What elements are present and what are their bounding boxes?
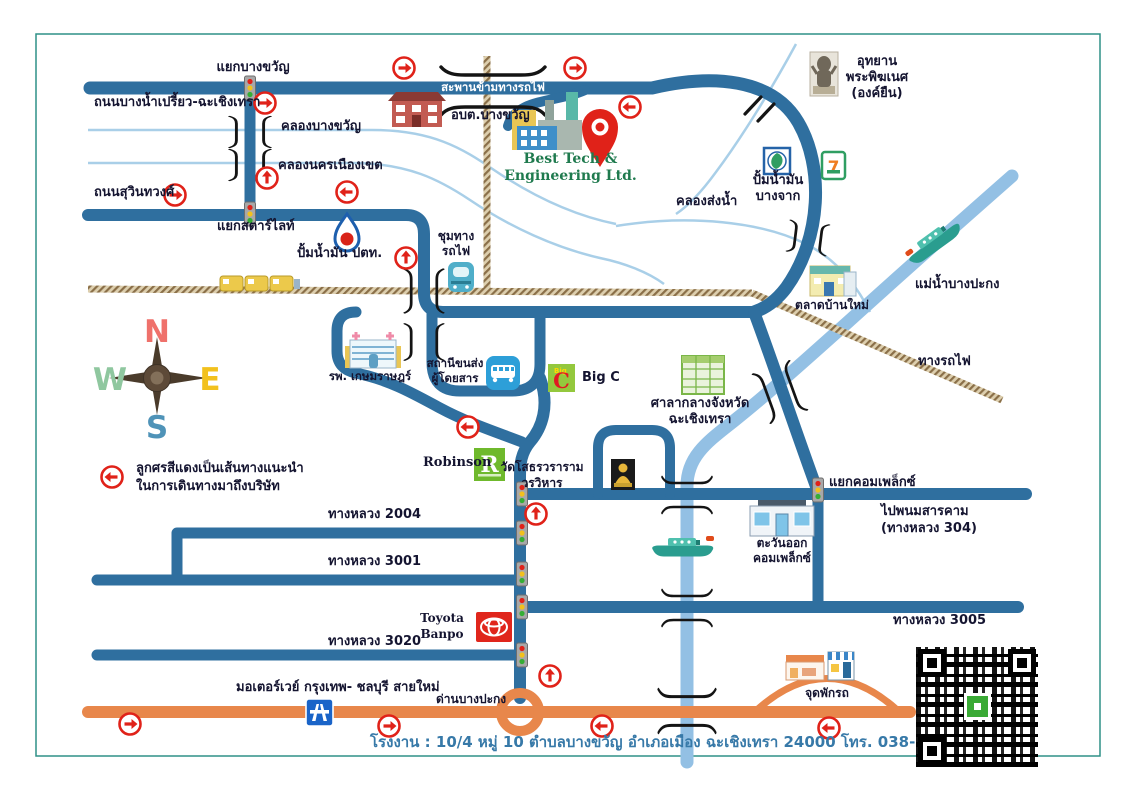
label-tawan-ok-line1: ตะวันออก bbox=[740, 537, 824, 551]
label-talat-ban-mai: ตลาดบ้านใหม่ bbox=[790, 299, 874, 313]
label-legend-line2: ในการเดินทางมาถึงบริษัท bbox=[136, 480, 280, 495]
compass-south-label: S bbox=[146, 410, 168, 446]
compass-west-label: W bbox=[93, 362, 127, 398]
tawan-ok-complex-icon bbox=[750, 500, 814, 536]
train-icon bbox=[220, 276, 300, 291]
wat-sothon-icon bbox=[611, 459, 635, 490]
label-bangchak-line1: ปั้มน้ำมัน bbox=[737, 174, 819, 189]
label-factory-address: โรงงาน : 10/4 หมู่ 10 ตำบลบางขวัญ อำเภอเ… bbox=[370, 734, 974, 751]
label-bus-terminal-line2: ผู้โดยสาร bbox=[425, 372, 485, 385]
label-ganesh-line2: พระพิฆเนศ bbox=[836, 71, 918, 86]
label-rail-junction-line2: รถไฟ bbox=[425, 245, 487, 259]
label-big-c: Big C bbox=[582, 371, 620, 386]
motorway-sign-icon bbox=[306, 699, 333, 726]
label-to-phanom-line1: ไปพนมสารคาม bbox=[881, 505, 969, 520]
qr-finder-top-right bbox=[1008, 649, 1036, 677]
market-icon bbox=[810, 266, 856, 296]
qr-finder-bottom-left bbox=[918, 737, 946, 765]
svg-text:7: 7 bbox=[828, 158, 840, 178]
label-hwy-3001: ทางหลวง 3001 bbox=[328, 555, 421, 570]
label-motorway: มอเตอร์เวย์ กรุงเทพ- ชลบุรี สายใหม่ bbox=[236, 681, 440, 696]
label-rest-area: จุดพักรถ bbox=[789, 687, 865, 701]
label-ganesh-line1: อุทยาน bbox=[836, 55, 918, 70]
label-robinson: Robinson bbox=[423, 456, 491, 471]
qr-code bbox=[916, 647, 1038, 767]
label-khlong-nakhon-nueang-khet: คลองนครเนืองเขต bbox=[278, 159, 383, 174]
label-toyota-line1: Toyota bbox=[412, 612, 472, 626]
label-to-phanom-line2: (ทางหลวง 304) bbox=[881, 522, 977, 537]
ferry-boat-icon bbox=[652, 538, 713, 557]
compass-rose: N S W E bbox=[93, 314, 221, 446]
svg-text:C: C bbox=[553, 368, 570, 393]
label-obt-bang-khwan: อบต.บางขวัญ bbox=[451, 109, 530, 124]
label-junction-complex: แยกคอมเพล็กซ์ bbox=[829, 476, 916, 491]
label-road-suwinthawong: ถนนสุวินทวงศ์ bbox=[94, 186, 174, 201]
label-ptt-station: ปั้มน้ำมัน ปตท. bbox=[297, 247, 382, 262]
label-legend-line1: ลูกศรสีแดงเป็นเส้นทางแนะนำ bbox=[136, 462, 304, 477]
bus-terminal-icon bbox=[486, 356, 520, 390]
label-city-hall-line2: ฉะเชิงเทรา bbox=[640, 413, 760, 428]
label-toll-gate: ด่านบางปะกง bbox=[436, 693, 506, 707]
label-hwy-2004: ทางหลวง 2004 bbox=[328, 508, 421, 523]
qr-finder-top-left bbox=[918, 649, 946, 677]
label-rail-bridge: สะพานข้ามทางรถไฟ bbox=[428, 81, 558, 94]
compass-north-label: N bbox=[144, 314, 170, 350]
bangchak-station-icon bbox=[764, 148, 790, 174]
rail-junction-train-icon bbox=[448, 262, 474, 292]
label-city-hall-line1: ศาลากลางจังหวัด bbox=[640, 397, 760, 412]
label-railway: ทางรถไฟ bbox=[918, 355, 971, 370]
toyota-logo-icon bbox=[476, 612, 512, 642]
label-khlong-song-nam: คลองส่งน้ำ bbox=[676, 195, 737, 210]
label-khlong-bang-khwan: คลองบางขวัญ bbox=[281, 120, 361, 135]
label-hospital: รพ. เกษมราษฎร์ bbox=[328, 370, 412, 383]
label-hwy-3020: ทางหลวง 3020 bbox=[328, 635, 421, 650]
big-c-logo-icon: Big C bbox=[548, 364, 575, 393]
label-company-line1: Best Tech & bbox=[503, 151, 638, 167]
label-junction-bang-khwan: แยกบางขวัญ bbox=[188, 61, 318, 76]
qr-center-logo bbox=[964, 693, 991, 720]
label-ganesh-line3: (องค์ยืน) bbox=[836, 87, 918, 102]
compass-east-label: E bbox=[199, 362, 220, 398]
route-map: 7 Big C R bbox=[0, 0, 1123, 794]
label-bang-pakong-river: แม่น้ำบางปะกง bbox=[915, 278, 1000, 293]
label-bangchak-line2: บางจาก bbox=[737, 190, 819, 205]
label-hwy-3005: ทางหลวง 3005 bbox=[893, 614, 986, 629]
label-bus-terminal-line1: สถานีขนส่ง bbox=[425, 357, 485, 370]
label-rail-junction-line1: ชุมทาง bbox=[425, 230, 487, 244]
obt-building-icon bbox=[388, 92, 446, 127]
label-toyota-line2: Banpo bbox=[412, 628, 472, 642]
seven-eleven-icon: 7 bbox=[822, 152, 845, 179]
city-hall-icon bbox=[682, 356, 724, 394]
label-tawan-ok-line2: คอมเพล็กซ์ bbox=[740, 552, 824, 566]
small-boat2-icon bbox=[706, 536, 714, 541]
label-road-bang-nam-priao: ถนนบางน้ำเปรี้ยว-ฉะเชิงเทรา bbox=[94, 96, 260, 111]
label-junction-starlight: แยกสตาร์ไลท์ bbox=[217, 220, 295, 235]
label-wat-line1: วัดโสธรวราราม bbox=[488, 461, 596, 475]
rest-area-shops-icon bbox=[786, 652, 854, 680]
label-wat-line2: วรวิหาร bbox=[488, 477, 596, 491]
hospital-icon bbox=[345, 332, 401, 368]
label-company-line2: Engineering Ltd. bbox=[503, 168, 638, 184]
ganesh-statue-icon bbox=[810, 52, 838, 96]
